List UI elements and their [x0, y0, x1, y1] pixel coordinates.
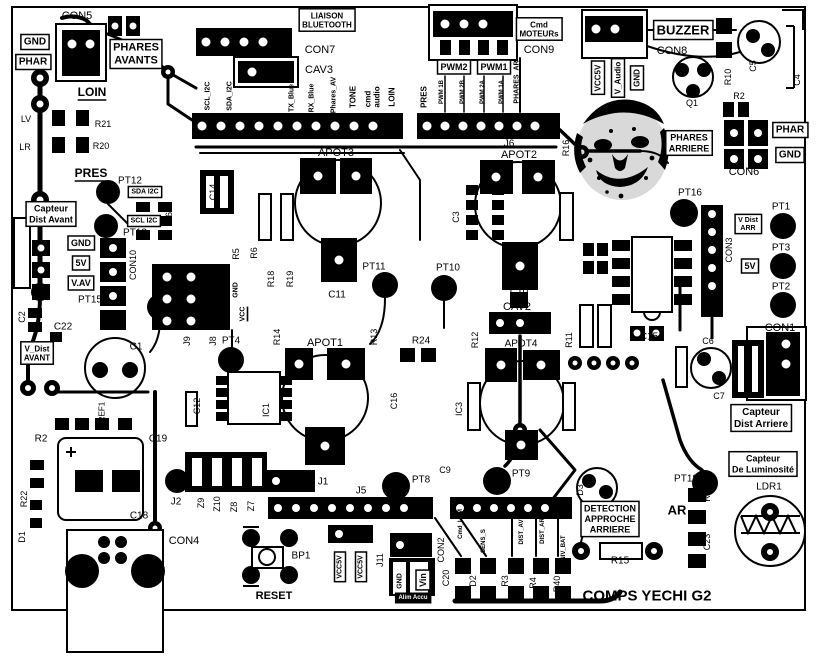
silk-audio: audio: [373, 86, 382, 107]
svg-text:PT8: PT8: [412, 475, 431, 486]
svg-text:R4: R4: [528, 577, 538, 589]
svg-text:C4: C4: [792, 74, 802, 86]
svg-text:CON2: CON2: [436, 537, 446, 562]
silk-con6: CON6: [729, 166, 760, 178]
capteur-dist-arriere-label: CapteurDist Arriere: [731, 405, 792, 432]
svg-text:CON5: CON5: [62, 10, 93, 22]
svg-text:Alim Accu: Alim Accu: [398, 595, 427, 601]
svg-text:CON7: CON7: [305, 44, 336, 56]
silk-pres: PRES: [75, 166, 108, 181]
silk-ldr1: LDR1: [756, 482, 782, 493]
svg-text:C5: C5: [748, 60, 758, 72]
ic1-footprint: [216, 372, 292, 424]
svg-text:CON9: CON9: [524, 44, 555, 56]
silk-r21: R21: [95, 119, 112, 129]
svg-text:APOT2: APOT2: [501, 149, 537, 161]
silk-ar: AR: [668, 503, 687, 518]
silk-gnd: GND: [631, 66, 644, 90]
svg-text:TX_Blue: TX_Blue: [289, 84, 296, 112]
svg-text:TONE: TONE: [349, 85, 358, 108]
silk-5v: 5V: [741, 259, 758, 273]
svg-text:BP1: BP1: [292, 551, 311, 562]
silk-pt4: PT4: [222, 336, 241, 347]
svg-text:GND: GND: [633, 69, 642, 87]
phares-arriere-label: PHARESARRIERE: [666, 131, 713, 156]
svg-text:C18: C18: [130, 511, 149, 522]
svg-text:VCC: VCC: [240, 307, 247, 322]
svg-text:IC6: IC6: [164, 212, 174, 226]
svg-text:R10: R10: [723, 69, 733, 86]
silk-j8: J8: [208, 336, 218, 346]
q1-transistor: [673, 57, 713, 98]
silk-pt11: PT11: [362, 262, 386, 273]
svg-text:R3: R3: [500, 575, 510, 587]
silk-cmd-lum: Cmd_LUM: [458, 509, 464, 539]
silk-con7: CON7: [305, 44, 336, 56]
silk-z8: Z8: [229, 502, 239, 513]
svg-text:CON6: CON6: [729, 166, 760, 178]
silk-v-dist-avant: V_DistAVANT: [21, 342, 53, 364]
silk-phares-ar: PHARES_AR: [514, 60, 521, 103]
svg-text:R6: R6: [249, 247, 259, 259]
silk-r40: R40: [552, 576, 562, 593]
silk-pt8: PT8: [412, 475, 431, 486]
svg-text:PRES: PRES: [420, 85, 429, 107]
svg-text:PT9: PT9: [512, 469, 531, 480]
silk-pt2: PT2: [772, 282, 791, 293]
svg-text:J8: J8: [208, 336, 218, 346]
silk-z10: Z10: [212, 496, 222, 512]
svg-text:PHAR: PHAR: [19, 57, 48, 68]
alim-accu-label: Alim Accu: [395, 593, 430, 603]
svg-text:C11: C11: [328, 290, 346, 301]
silk-c14: C14: [208, 184, 218, 201]
silk-cav2: CAV2: [503, 301, 531, 313]
svg-text:APOT3: APOT3: [318, 147, 354, 159]
silk-c20: C20: [441, 570, 451, 587]
svg-text:C15: C15: [640, 332, 659, 343]
svg-text:C9: C9: [439, 465, 451, 475]
silk-dist-av: DIST_AV: [519, 520, 525, 545]
silk-c2: C2: [17, 311, 27, 323]
silk-d1: D1: [17, 531, 27, 543]
main-header-row: [192, 113, 560, 139]
silk-scl-i2c: SCL I2C: [128, 216, 161, 227]
buzzer-label: BUZZER: [654, 21, 713, 40]
silk-r12: R12: [470, 332, 480, 349]
svg-text:D2: D2: [468, 575, 478, 587]
svg-text:LR: LR: [19, 142, 31, 152]
svg-text:RESET: RESET: [256, 590, 293, 602]
silk-r15: R15: [611, 556, 630, 567]
svg-text:5V: 5V: [75, 258, 86, 268]
svg-text:J9: J9: [182, 336, 192, 346]
silk-cav3: CAV3: [305, 64, 333, 76]
svg-text:C23: C23: [702, 534, 712, 551]
silk-d2: D2: [468, 575, 478, 587]
svg-text:IC3: IC3: [454, 402, 464, 416]
silk-c22: C22: [54, 322, 73, 333]
silk-pt16: PT16: [678, 188, 702, 199]
silk-j9: J9: [182, 336, 192, 346]
silk-dist-ar: DIST_AR: [540, 517, 546, 543]
silk-j5: J5: [356, 486, 367, 497]
svg-text:PT16: PT16: [678, 188, 702, 199]
silk-gnd: GND: [776, 148, 804, 163]
svg-text:PT12: PT12: [118, 176, 142, 187]
svg-text:R15: R15: [611, 556, 630, 567]
silk-5v: 5V: [72, 256, 89, 270]
silk-c19: C19: [149, 434, 168, 445]
svg-text:Z8: Z8: [229, 502, 239, 513]
silk-gnd: GND: [21, 35, 49, 50]
silk-con1: CON1: [765, 322, 796, 334]
silk-pt18: PT18: [674, 474, 698, 485]
silk-c5: C5: [748, 60, 758, 72]
svg-text:C3: C3: [451, 211, 461, 223]
board-title: COMPS YECHI G2: [583, 588, 712, 605]
svg-text:GND: GND: [24, 37, 46, 48]
silk-pwm-1a: PWM 1A: [499, 79, 505, 104]
svg-text:CON1: CON1: [765, 322, 796, 334]
silk-vcc5v: VCC5V: [592, 61, 605, 94]
silk-j1: J1: [318, 477, 329, 488]
svg-text:C10: C10: [510, 287, 529, 298]
silk-vin: Vin: [416, 570, 430, 590]
silk-apot1: APOT1: [307, 337, 343, 349]
silk-phares-av: Phares_AV: [331, 76, 338, 113]
svg-text:V.AV: V.AV: [71, 278, 91, 288]
silk-r22: R22: [19, 491, 29, 508]
silk-scl-i2c: SCL_I2C: [205, 82, 212, 111]
silk-c16: C16: [389, 393, 399, 410]
bluetooth-header: [196, 28, 292, 56]
svg-text:V DistARR: V DistARR: [738, 216, 759, 231]
svg-text:J2: J2: [171, 497, 182, 508]
silk-apot3: APOT3: [318, 147, 354, 159]
svg-text:Z7: Z7: [246, 501, 256, 512]
svg-text:CON3: CON3: [724, 237, 734, 262]
svg-text:Q1: Q1: [686, 98, 698, 108]
svg-text:R21: R21: [95, 119, 112, 129]
svg-text:SDA_I2C: SDA_I2C: [227, 81, 234, 111]
ic6-footprint: [136, 170, 234, 240]
svg-text:Phares_AV: Phares_AV: [331, 76, 338, 113]
svg-text:V_DistAVANT: V_DistAVANT: [24, 344, 50, 362]
detection-approche-arriere-label: DETECTIONAPPROCHEARRIERE: [581, 501, 639, 536]
svg-text:SCL_I2C: SCL_I2C: [205, 82, 212, 111]
cmd-moteurs-label: CmdMOTEURs: [516, 18, 562, 40]
silk-ic3: IC3: [454, 402, 464, 416]
silk-pt15: PT15: [78, 295, 102, 306]
silk-gnd: GND: [397, 573, 404, 589]
svg-text:C7: C7: [713, 391, 725, 401]
svg-text:R40: R40: [552, 576, 562, 593]
svg-text:PT18: PT18: [674, 474, 698, 485]
silk-r4: R4: [528, 577, 538, 589]
svg-text:PWM 1A: PWM 1A: [499, 79, 505, 104]
silk-d3: D3: [575, 484, 585, 496]
svg-text:BUZZER: BUZZER: [657, 23, 710, 38]
phares-avants-label: PHARESAVANTS: [110, 40, 162, 69]
svg-text:Cmd_LUM: Cmd_LUM: [458, 509, 464, 539]
silk-r14: R14: [272, 329, 282, 346]
silk-c1: C1: [130, 342, 143, 353]
svg-text:VCC5V: VCC5V: [358, 555, 365, 579]
svg-text:PHARESARRIERE: PHARESARRIERE: [669, 133, 710, 154]
svg-text:GND: GND: [71, 238, 92, 248]
silk-loin: LOIN: [388, 87, 397, 106]
silk-r13: R13: [369, 329, 379, 346]
silk-v-dist-arr: V DistARR: [735, 214, 762, 233]
svg-text:V_Audio: V_Audio: [614, 62, 623, 95]
j11-vcc5v-block: [328, 525, 373, 543]
cmd-moteurs-connector: [429, 5, 517, 60]
svg-text:DIST_AR: DIST_AR: [540, 517, 546, 543]
svg-text:CAV3: CAV3: [305, 64, 333, 76]
svg-text:C2: C2: [17, 311, 27, 323]
silk-con3: CON3: [724, 237, 734, 262]
silk-z9: Z9: [196, 498, 206, 509]
silk-ic6: IC6: [164, 212, 174, 226]
buzzer-connector: [582, 10, 647, 58]
svg-text:GND: GND: [779, 150, 801, 161]
svg-text:SENS_S: SENS_S: [481, 529, 487, 553]
svg-text:D3: D3: [575, 484, 585, 496]
svg-text:APOT1: APOT1: [307, 337, 343, 349]
svg-text:J11: J11: [375, 553, 385, 567]
cav2-header: [489, 312, 551, 334]
svg-text:C12: C12: [192, 398, 202, 415]
silk-gnd: GND: [68, 236, 95, 250]
svg-text:J6: J6: [504, 139, 515, 150]
silk-r7: R7: [702, 490, 712, 502]
silk-ic1: IC1: [261, 403, 271, 417]
silk-apot4: APOT4: [505, 339, 538, 350]
svg-text:C22: C22: [54, 322, 73, 333]
con3-column: [701, 205, 723, 317]
silk-r2: R2: [733, 91, 745, 101]
silk-z7: Z7: [246, 501, 256, 512]
reset-label: RESET: [256, 590, 293, 602]
silk-r24: R24: [412, 336, 431, 347]
svg-text:R7: R7: [702, 490, 712, 502]
silk-r3: R3: [500, 575, 510, 587]
silk-pt13: PT13: [123, 228, 147, 239]
silk-j2: J2: [171, 497, 182, 508]
svg-text:PT2: PT2: [772, 282, 791, 293]
svg-text:PHARESAVANTS: PHARESAVANTS: [113, 42, 159, 67]
silk-j11: J11: [375, 553, 385, 567]
svg-text:CAV2: CAV2: [503, 301, 531, 313]
svg-text:CON10: CON10: [128, 250, 138, 280]
svg-text:5V: 5V: [744, 261, 755, 271]
svg-text:LDR1: LDR1: [756, 482, 782, 493]
silk-sda-i2c: SDA_I2C: [227, 81, 234, 111]
svg-text:LV: LV: [21, 114, 31, 124]
silk-c10: C10: [510, 287, 529, 298]
silk-gnd: GND: [233, 282, 240, 298]
svg-text:RX_Blue: RX_Blue: [309, 84, 316, 113]
svg-text:CON4: CON4: [169, 535, 200, 547]
cav3-header: [234, 57, 298, 87]
silk-phar: PHAR: [773, 123, 808, 138]
svg-text:PWM 1B: PWM 1B: [439, 79, 445, 104]
pcb-layout-drawing: COMPS YECHI G2 CON5GNDPHARPHARESAVANTSLO…: [0, 0, 821, 663]
svg-text:R11: R11: [564, 332, 574, 348]
svg-text:PHAR: PHAR: [776, 125, 805, 136]
svg-text:R19: R19: [285, 271, 295, 288]
svg-text:R2: R2: [35, 434, 48, 445]
silk-c9: C9: [439, 465, 451, 475]
svg-text:J1: J1: [318, 477, 329, 488]
silk-pt10: PT10: [436, 263, 460, 274]
r21-r20-footprints: [52, 110, 89, 153]
svg-text:PHARES_AR: PHARES_AR: [514, 60, 521, 103]
svg-text:C14: C14: [208, 184, 218, 201]
silk-sens-s: SENS_S: [481, 529, 487, 553]
svg-text:PRES: PRES: [75, 166, 108, 180]
svg-text:D1: D1: [17, 531, 27, 543]
svg-text:R2: R2: [733, 91, 745, 101]
silk-r2: R2: [35, 434, 48, 445]
zener-block: [185, 452, 267, 492]
silk-con10: CON10: [128, 250, 138, 280]
silk-con2: CON2: [436, 537, 446, 562]
bp1-reset-button: [242, 527, 298, 586]
svg-text:LOIN: LOIN: [388, 87, 397, 106]
svg-text:PT13: PT13: [123, 228, 147, 239]
silk-r5: R5: [231, 248, 241, 260]
silk-sda-i2c: SDA I2C: [128, 187, 161, 198]
silk-c3: C3: [451, 211, 461, 223]
svg-text:R12: R12: [470, 332, 480, 349]
svg-text:R16: R16: [561, 140, 571, 157]
silk-con9: CON9: [524, 44, 555, 56]
silk-loin: LOIN: [78, 85, 107, 100]
silk-c11: C11: [328, 290, 346, 301]
svg-text:Z10: Z10: [212, 496, 222, 512]
svg-text:R18: R18: [266, 271, 276, 288]
svg-text:PT15: PT15: [78, 295, 102, 306]
svg-text:cmd: cmd: [364, 91, 373, 108]
silk-phar: PHAR: [16, 55, 51, 70]
svg-text:LOIN: LOIN: [78, 85, 107, 99]
monkey-face-graphic: [574, 100, 669, 201]
silk-v-audio: V_Audio: [612, 59, 625, 98]
svg-text:C1: C1: [130, 342, 143, 353]
silk-tone: TONE: [349, 85, 358, 108]
svg-text:Vin: Vin: [418, 573, 428, 587]
silk-v-av: V.AV: [68, 276, 94, 290]
svg-text:PT11: PT11: [362, 262, 386, 273]
svg-text:GND: GND: [233, 282, 240, 298]
svg-text:J5: J5: [356, 486, 367, 497]
svg-text:DIST_AV: DIST_AV: [519, 520, 525, 545]
svg-text:VCC5V: VCC5V: [594, 64, 603, 91]
silk-rx-blue: RX_Blue: [309, 84, 316, 113]
svg-text:R14: R14: [272, 329, 282, 346]
silk-c7: C7: [713, 391, 725, 401]
svg-text:R20: R20: [93, 141, 110, 151]
svg-text:C16: C16: [389, 393, 399, 410]
svg-text:IC1: IC1: [261, 403, 271, 417]
silk-pt1: PT1: [772, 202, 791, 213]
silk-pwm-2a: PWM 2A: [480, 79, 486, 104]
silk-j6: J6: [504, 139, 515, 150]
svg-text:PWM 2B: PWM 2B: [460, 79, 466, 104]
silk-pt3: PT3: [772, 243, 791, 254]
silk-lr: LR: [19, 142, 31, 152]
con6-pads: [723, 102, 768, 169]
svg-text:SCL I2C: SCL I2C: [131, 218, 158, 225]
svg-text:PWM1: PWM1: [481, 62, 508, 72]
liaison-bluetooth-label: LIAISONBLUETOOTH: [299, 9, 355, 31]
svg-text:R13: R13: [369, 329, 379, 346]
silk-pt9: PT9: [512, 469, 531, 480]
silk-pwm1: PWM1: [478, 60, 511, 74]
svg-text:C19: C19: [149, 434, 168, 445]
svg-text:REF1: REF1: [98, 401, 107, 422]
silk-r11: R11: [564, 332, 574, 348]
silk-ref1: REF1: [98, 401, 107, 422]
capteur-luminosite-label: CapteurDe Luminosité: [729, 452, 797, 477]
silk-cmd: cmd: [364, 91, 373, 108]
silk-q1: Q1: [686, 98, 698, 108]
silk-con4: CON4: [169, 535, 200, 547]
svg-text:AR: AR: [668, 503, 687, 518]
silk-pres: PRES: [420, 85, 429, 107]
svg-text:SDA I2C: SDA I2C: [131, 189, 158, 196]
silk-c18: C18: [130, 511, 149, 522]
svg-text:audio: audio: [373, 86, 382, 107]
silk-r20: R20: [93, 141, 110, 151]
svg-text:PT4: PT4: [222, 336, 241, 347]
svg-text:CapteurDist Avant: CapteurDist Avant: [29, 204, 73, 225]
silk-niv-bat: NIV_BAT: [561, 535, 567, 561]
silk-r10: R10: [723, 69, 733, 86]
svg-text:PWM 2A: PWM 2A: [480, 79, 486, 104]
silk-pwm-2b: PWM 2B: [460, 79, 466, 104]
con4-connector: [65, 530, 165, 652]
silk-con8: CON8: [657, 45, 688, 57]
silk-vcc5v: VCC5V: [356, 552, 367, 582]
silk-lv: LV: [21, 114, 31, 124]
svg-text:R22: R22: [19, 491, 29, 508]
silk-vcc5v: VCC5V: [335, 552, 346, 582]
silk-apot2: APOT2: [501, 149, 537, 161]
silk-c12: C12: [192, 398, 202, 415]
silk-r18: R18: [266, 271, 276, 288]
silk-pwm2: PWM2: [438, 60, 471, 74]
svg-text:Z9: Z9: [196, 498, 206, 509]
svg-text:C20: C20: [441, 570, 451, 587]
svg-text:NIV_BAT: NIV_BAT: [561, 535, 567, 561]
silk-r6: R6: [249, 247, 259, 259]
svg-text:PT1: PT1: [772, 202, 791, 213]
svg-text:VCC5V: VCC5V: [337, 555, 344, 579]
silk-c15: C15: [640, 332, 659, 343]
capteur-dist-avant-label: CapteurDist Avant: [26, 202, 76, 227]
svg-text:C6: C6: [702, 336, 714, 346]
svg-text:R5: R5: [231, 248, 241, 260]
svg-text:PT3: PT3: [772, 243, 791, 254]
svg-text:GND: GND: [397, 573, 404, 589]
svg-text:DETECTIONAPPROCHEARRIERE: DETECTIONAPPROCHEARRIERE: [584, 503, 636, 534]
silk-pt12: PT12: [118, 176, 142, 187]
apot1-potentiometer: [282, 348, 368, 465]
silk-bp1: BP1: [292, 551, 311, 562]
